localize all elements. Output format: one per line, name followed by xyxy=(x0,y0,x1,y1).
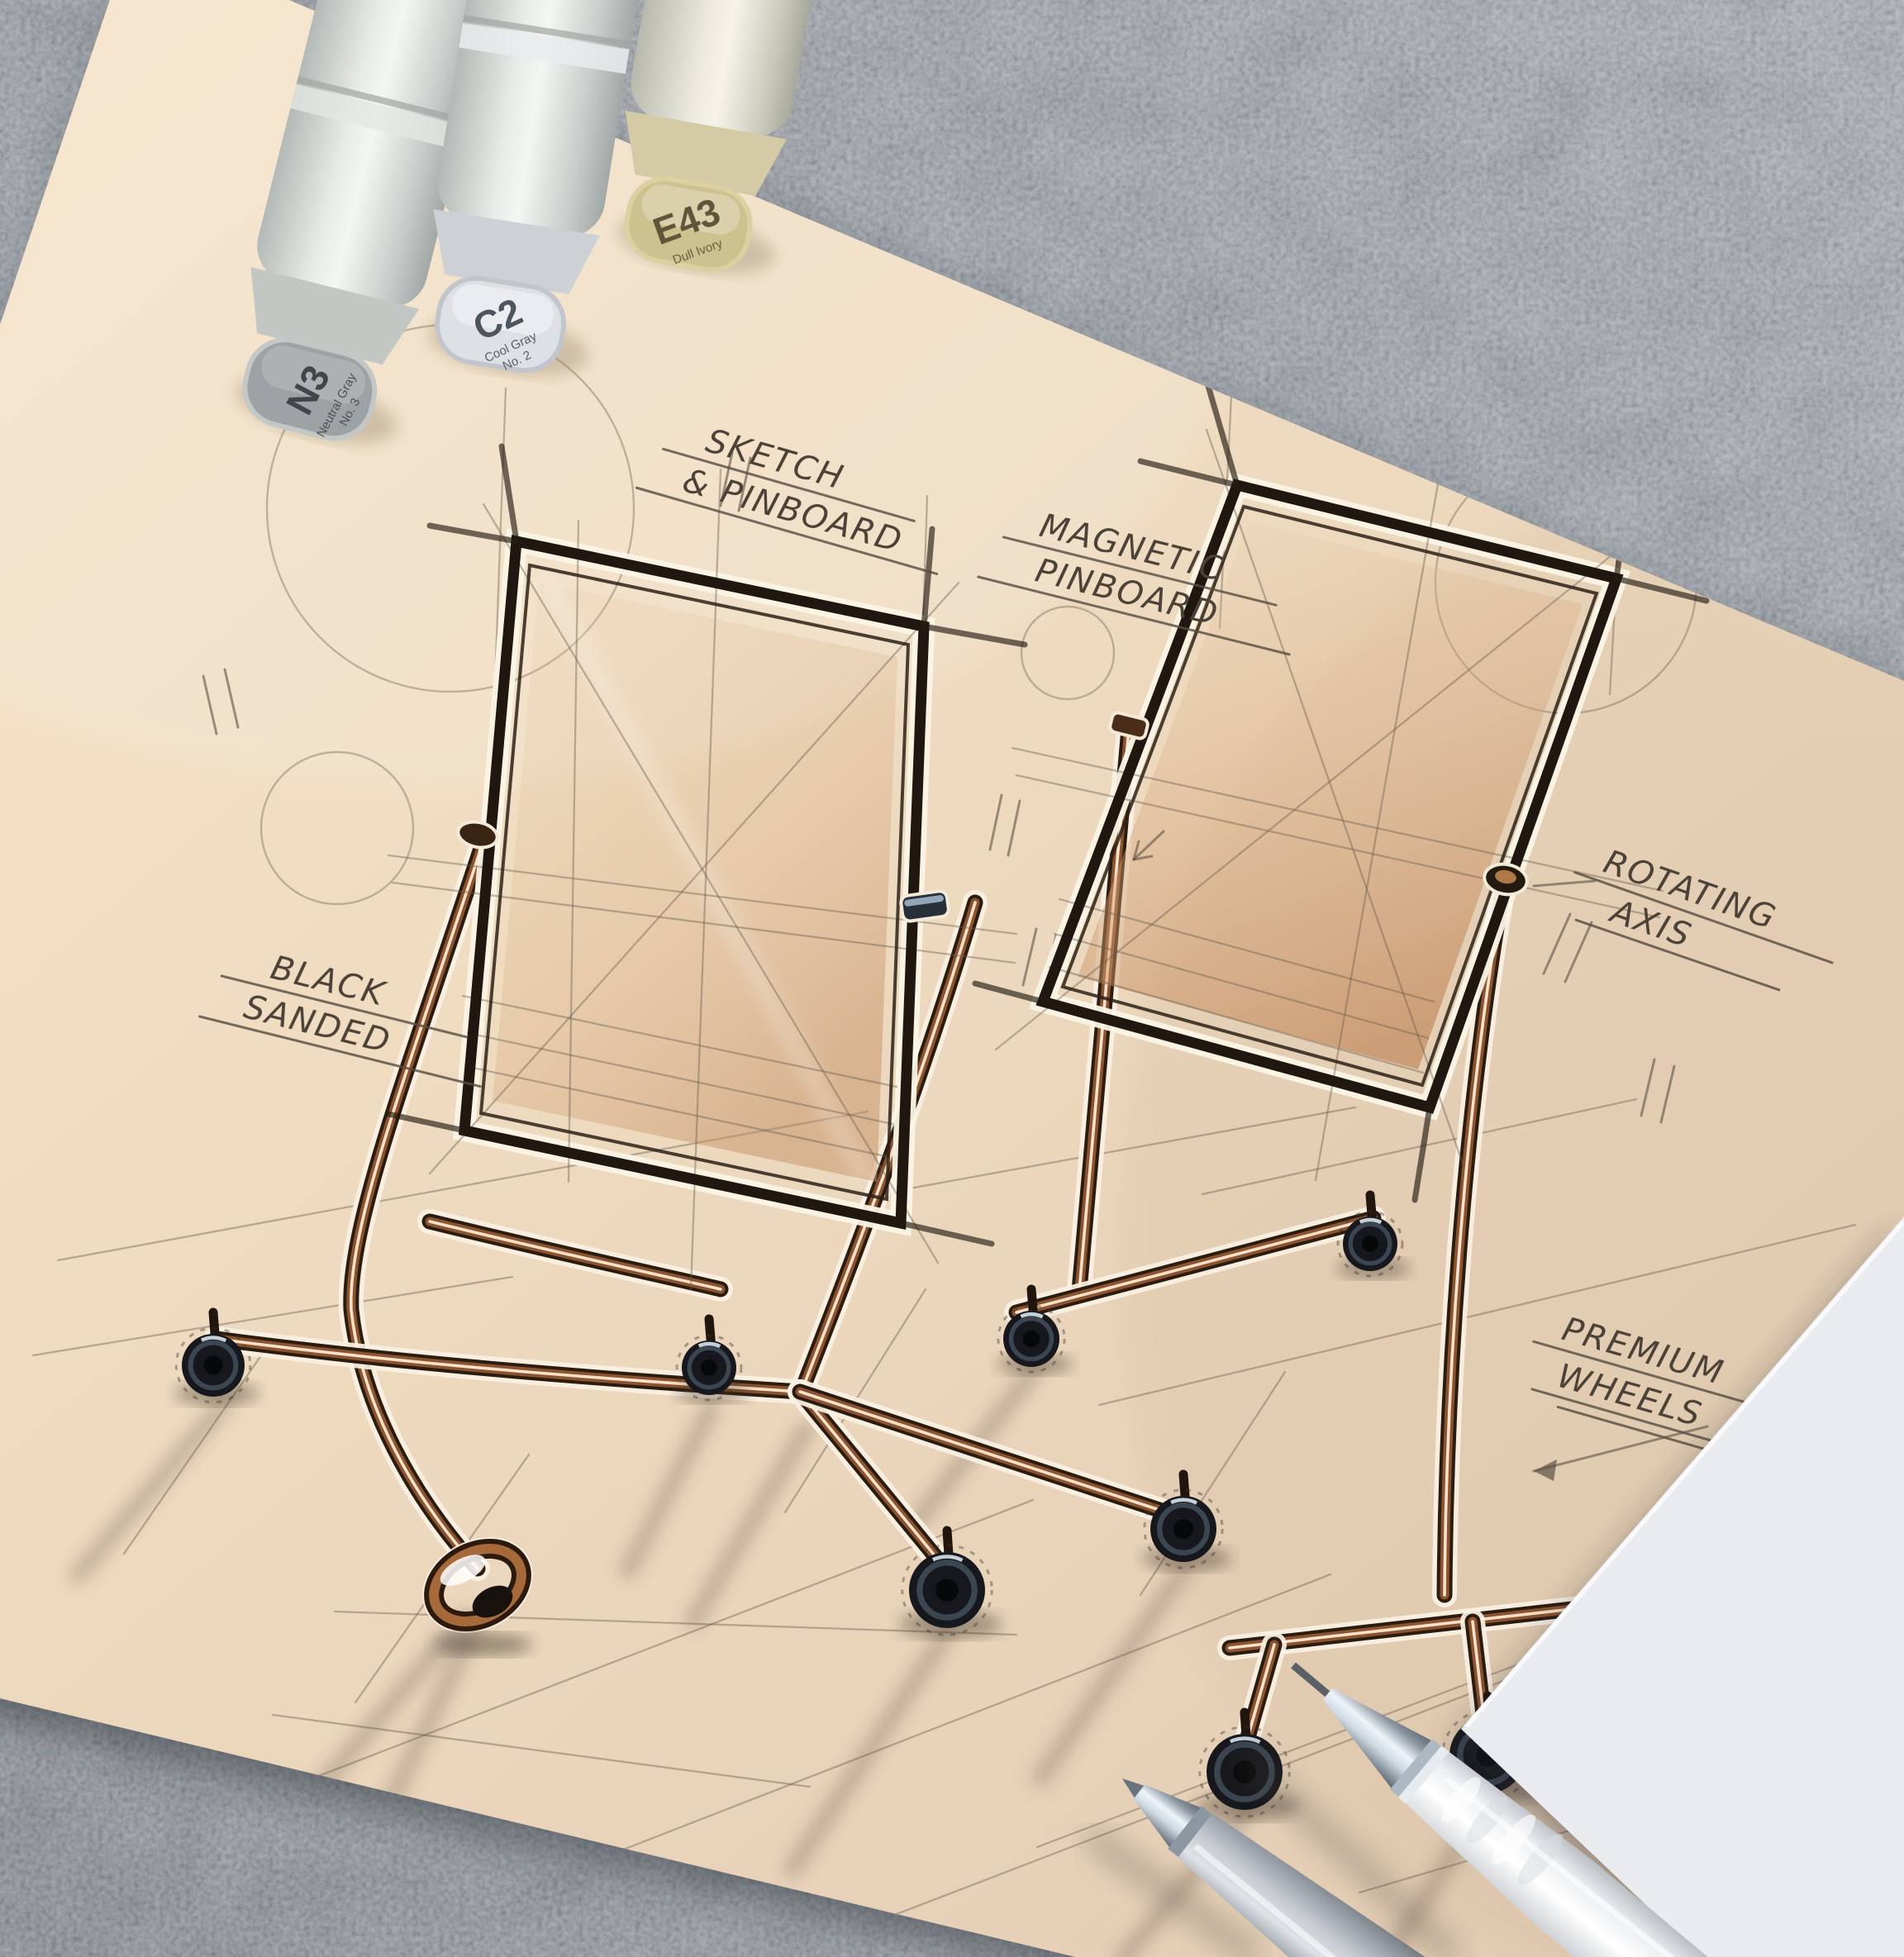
photo-scene: SKETCH & PINBOARD MAGNETIC PINBOARD ROTA… xyxy=(0,0,1904,1957)
